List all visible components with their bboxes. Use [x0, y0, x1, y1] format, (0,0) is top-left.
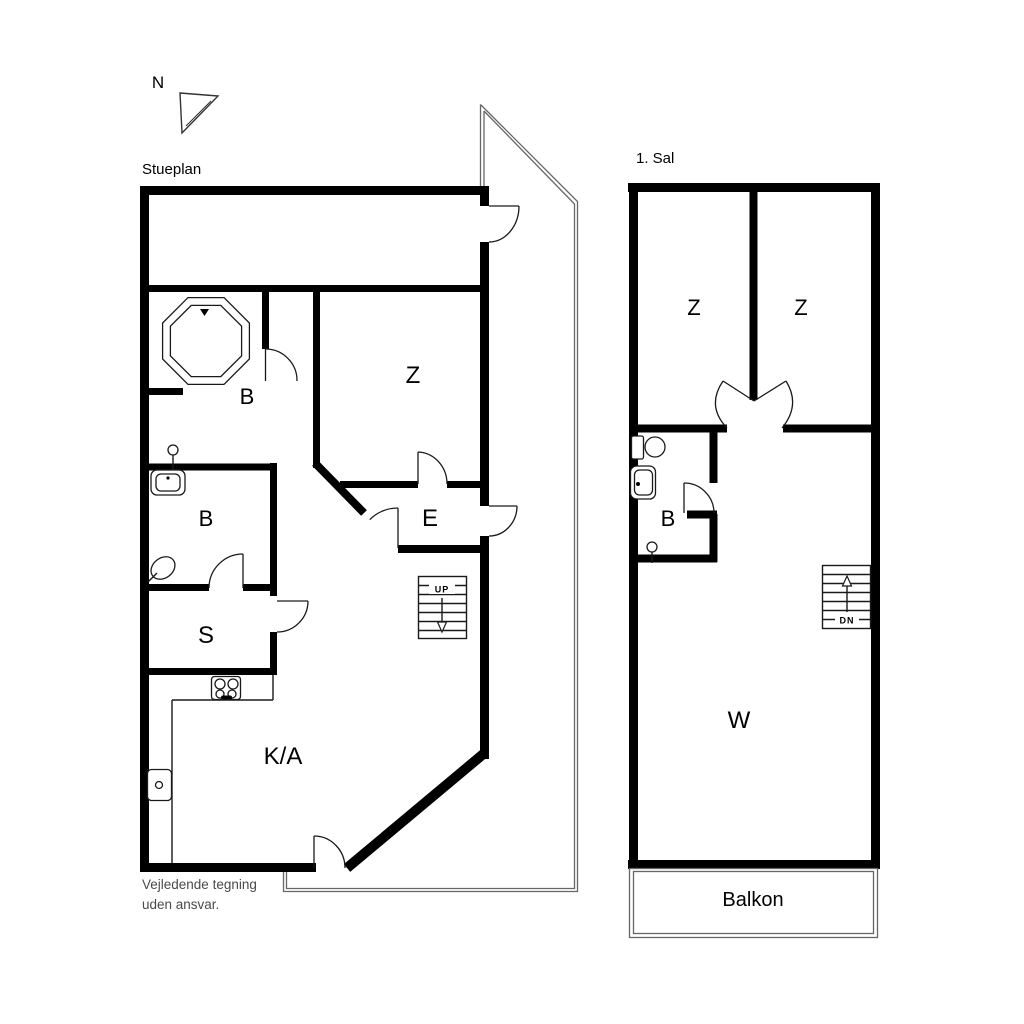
door-entry-exterior [489, 506, 517, 536]
toilet-ground [147, 552, 180, 584]
stairs-down: DN [823, 566, 871, 629]
sink-ground [151, 470, 185, 495]
stairs-up: UP [419, 577, 467, 639]
room-label-living-first: W [728, 707, 751, 734]
door-bedroom-left-first [715, 381, 754, 428]
north-label: N [152, 73, 164, 92]
ground-floor-title: Stueplan [142, 161, 201, 178]
door-bedroom [418, 452, 447, 484]
door-hall-diagonal [370, 508, 398, 548]
sink-first [631, 466, 656, 499]
room-label-bedroom-right-first: Z [794, 295, 807, 320]
floorplan-page: N Stueplan [0, 0, 1024, 1024]
room-label-entry: E [422, 505, 438, 532]
ground-floor-plan: Stueplan [140, 105, 578, 913]
stove [212, 677, 241, 701]
spa-tub [163, 298, 250, 385]
room-label-bedroom-left-first: Z [687, 295, 700, 320]
stairs-down-arrowhead [843, 576, 852, 586]
stairs-down-label: DN [840, 616, 855, 626]
door-annex-exterior [489, 206, 519, 242]
door-patio [314, 836, 345, 868]
room-label-bathroom-spa: B [240, 384, 255, 409]
room-label-kitchen-living: K/A [264, 743, 303, 770]
north-arrow: N [152, 73, 218, 133]
room-label-bathroom-ground: B [199, 506, 214, 531]
door-bedroom-right-first [754, 381, 793, 428]
toilet-first [632, 436, 666, 459]
kitchen-counter-line [172, 675, 273, 863]
room-label-bedroom-ground: Z [406, 362, 421, 389]
oven-appliance [148, 770, 172, 801]
balcony-label: Balkon [722, 889, 783, 911]
first-floor-title: 1. Sal [636, 150, 674, 167]
door-bathroom-storage [209, 554, 243, 588]
door-spa-bathroom [266, 349, 298, 381]
room-label-storage: S [198, 622, 214, 649]
disclaimer-line2: uden ansvar. [142, 897, 219, 912]
room-label-bathroom-first: B [661, 506, 676, 531]
stairs-up-label: UP [435, 585, 450, 595]
floorplan-drawing: N Stueplan [0, 0, 1024, 1024]
disclaimer-line1: Vejledende tegning [142, 877, 257, 892]
first-floor-plan: 1. Sal [628, 150, 880, 938]
door-bathroom-first [684, 483, 714, 513]
door-storage-hall [277, 601, 308, 632]
terrace-outline [284, 105, 578, 892]
